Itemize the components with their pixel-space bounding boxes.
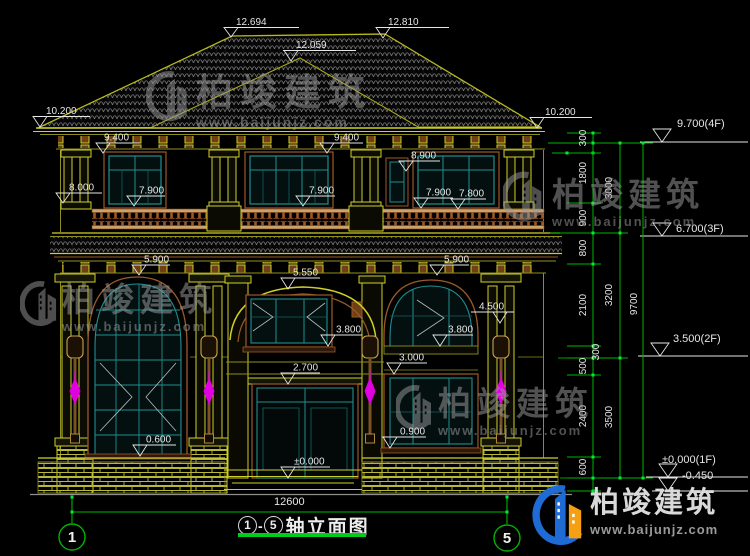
third-floor-windows — [104, 152, 499, 208]
elevation-marker-icon — [387, 363, 401, 374]
balcony-balustrade — [92, 206, 544, 231]
dim-label: 12.059 — [296, 40, 327, 51]
watermark: 柏竣建筑 www.baijunjz.com — [62, 283, 218, 333]
chain-dim-label: 300 — [591, 343, 602, 360]
dim-label: 2.700 — [293, 363, 318, 374]
dim-label: 7.900 — [426, 188, 451, 199]
watermark: 柏竣建筑 www.baijunjz.com — [196, 74, 372, 130]
dim-label: 5.900 — [444, 255, 469, 266]
dim-label: 5.900 — [144, 255, 169, 266]
axis-number-right: 5 — [503, 530, 511, 547]
watermark: 柏竣建筑 www.baijunjz.com — [438, 387, 594, 437]
dim-label: 8.900 — [411, 151, 436, 162]
dim-label: 0.600 — [146, 435, 171, 446]
watermark-name: 柏竣建筑 — [438, 387, 594, 422]
chain-dim-label: 3200 — [604, 283, 615, 306]
watermark-name: 柏竣建筑 — [62, 283, 218, 318]
chain-dim-label: 3500 — [604, 405, 615, 428]
watermark-url: www.baijunjz.com — [196, 115, 372, 130]
dim-label: 7.900 — [139, 186, 164, 197]
dim-label: 12.694 — [236, 17, 267, 28]
axis-number-left: 1 — [68, 529, 76, 546]
elevation-marker-icon — [653, 129, 671, 142]
cad-elevation-screenshot: 1 5 12.69412.81012.05910.20010.2009.4009… — [0, 0, 750, 556]
dim-label: 3.800 — [336, 325, 361, 336]
floor-elevation-label: 3.500(2F) — [673, 333, 721, 345]
dim-label: 10.200 — [545, 107, 576, 118]
watermark-url: www.baijunjz.com — [438, 424, 594, 438]
watermark-url: www.baijunjz.com — [62, 320, 218, 334]
floor-elevation-label: 9.700(4F) — [677, 118, 725, 130]
chain-dim-label: 500 — [578, 357, 589, 374]
overall-width-dim: 12600 — [274, 496, 305, 508]
watermark-url: www.baijunjz.com — [552, 215, 704, 229]
dim-label: 0.900 — [400, 427, 425, 438]
dim-label: 10.200 — [46, 106, 77, 117]
eave-bracket-row — [58, 136, 544, 148]
dim-label: 3.000 — [399, 353, 424, 364]
dim-label: 4.500 — [479, 302, 504, 313]
watermark-name: 柏竣建筑 — [196, 74, 372, 113]
dim-label: 7.800 — [459, 189, 484, 200]
dim-label: 8.000 — [69, 183, 94, 194]
watermark-name: 柏竣建筑 — [552, 178, 704, 213]
dim-label: 7.900 — [309, 186, 334, 197]
title-separator: - — [258, 518, 263, 534]
floor-elevation-label: ±0.000(1F) — [662, 454, 716, 466]
brand-logo-icon — [536, 489, 581, 541]
chain-dim-label: 600 — [578, 458, 589, 475]
dim-label: 9.400 — [104, 133, 129, 144]
brand-url: www.baijunjz.com — [590, 523, 718, 537]
floor-elevation-label: -0.450 — [682, 470, 713, 482]
dim-label: 3.800 — [448, 325, 473, 336]
chain-dim-label: 800 — [578, 239, 589, 256]
building-elevation-drawing: 1 5 12.69412.81012.05910.20010.2009.4009… — [0, 0, 750, 556]
chain-dim-label: 300 — [578, 129, 589, 146]
brand-name: 柏竣建筑 — [590, 488, 718, 520]
brand-logo-text: 柏竣建筑 www.baijunjz.com — [590, 488, 718, 537]
dim-label: ±0.000 — [294, 457, 325, 468]
watermark: 柏竣建筑 www.baijunjz.com — [552, 178, 704, 228]
elevation-marker-icon — [651, 343, 669, 356]
dim-label: 5.550 — [293, 268, 318, 279]
dim-label: 9.400 — [334, 133, 359, 144]
chain-dim-label: 9700 — [629, 292, 640, 315]
title-underline — [238, 533, 366, 537]
dim-label: 12.810 — [388, 17, 419, 28]
center-window-2f — [243, 295, 335, 352]
chain-dim-label: 2100 — [578, 293, 589, 316]
